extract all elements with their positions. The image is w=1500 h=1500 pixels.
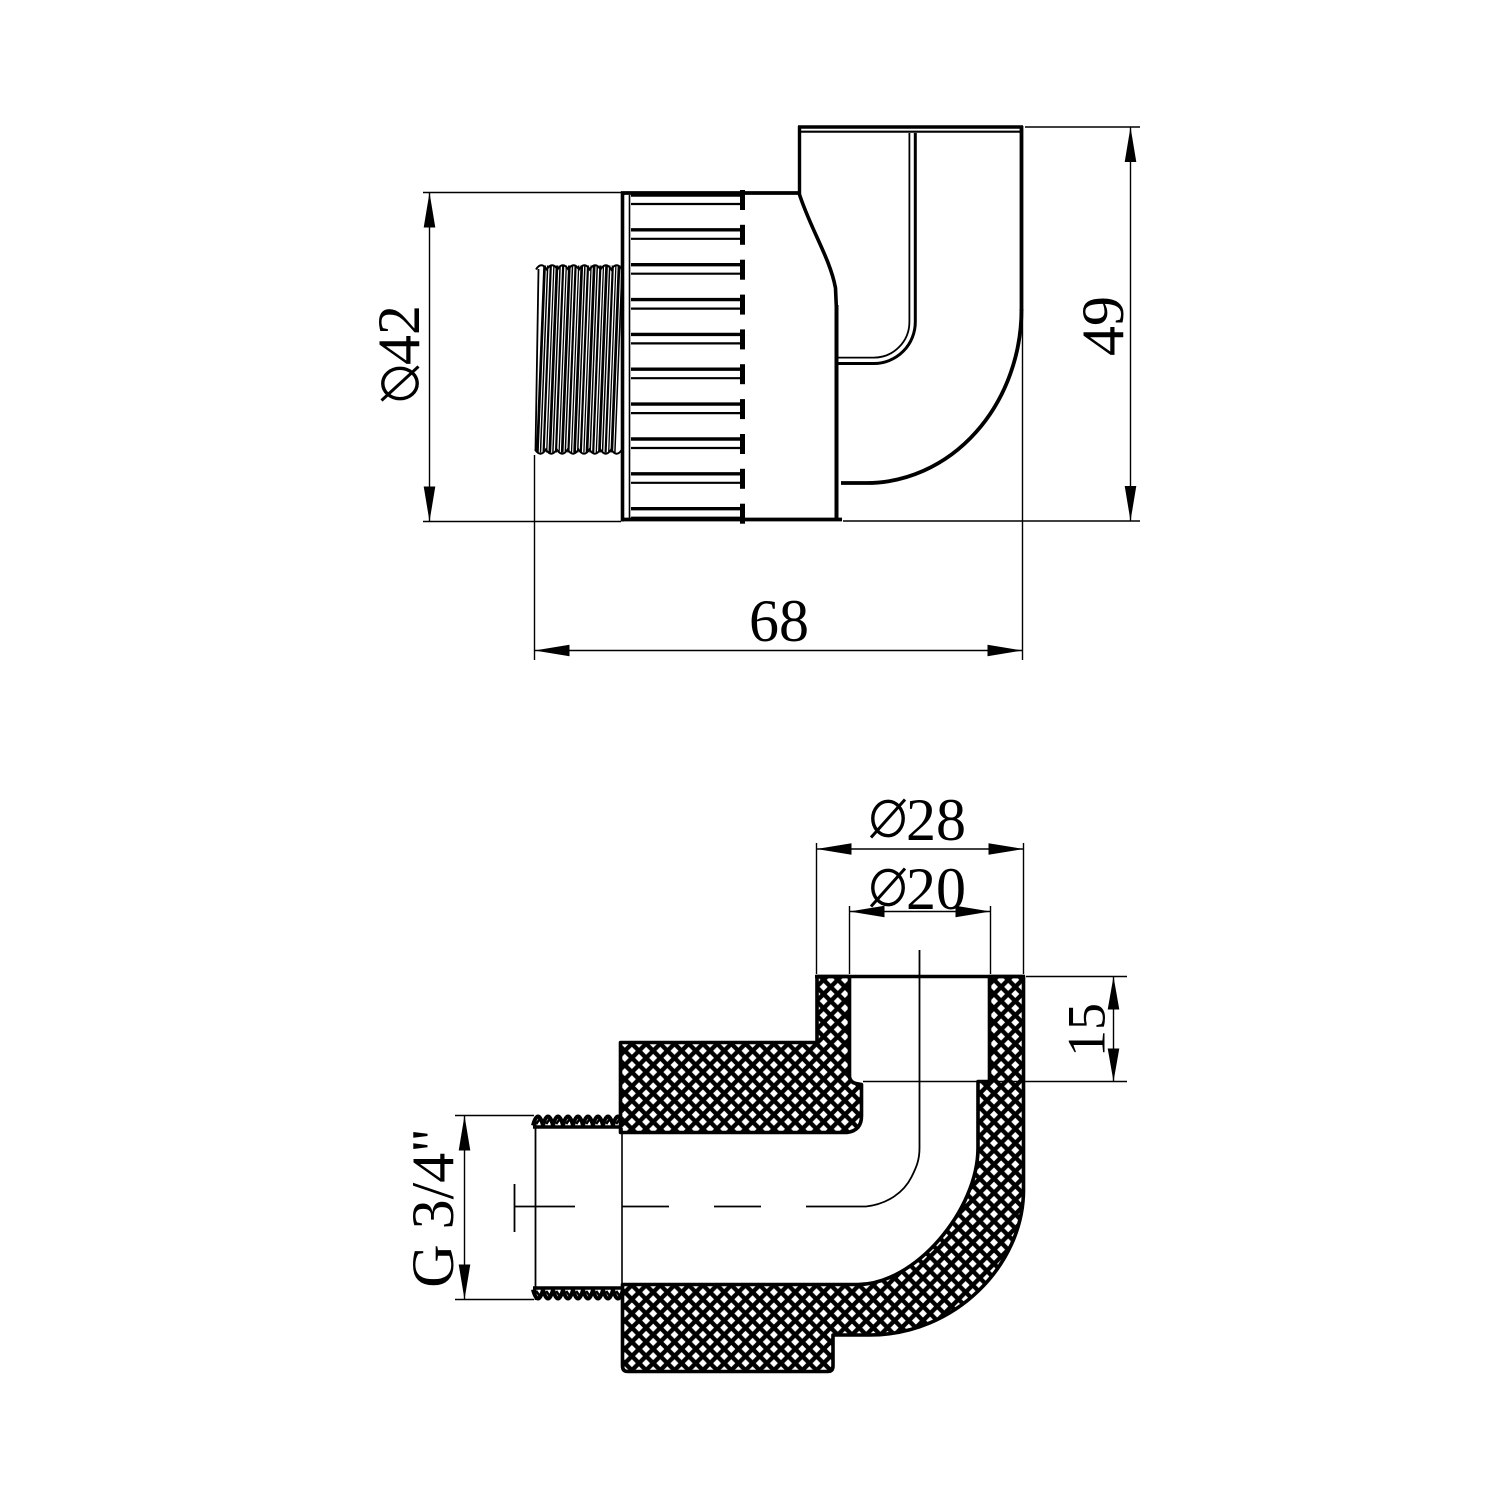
svg-text:15: 15	[1057, 1003, 1117, 1057]
svg-text:68: 68	[749, 588, 809, 654]
svg-text:49: 49	[1070, 296, 1136, 356]
svg-text:42: 42	[366, 305, 432, 365]
svg-text:28: 28	[906, 787, 966, 853]
svg-text:G 3/4": G 3/4"	[400, 1128, 466, 1288]
svg-text:20: 20	[906, 856, 966, 922]
